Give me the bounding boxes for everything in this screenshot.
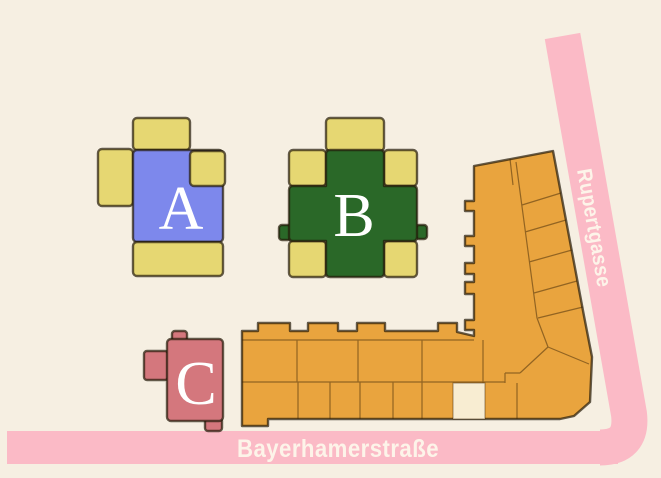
street-bayerhamerstrasse-label: Bayerhamerstraße [237, 435, 439, 463]
building-a-top-wing [133, 118, 190, 150]
building-a[interactable]: A [98, 118, 225, 276]
building-c-left-wing [144, 351, 168, 380]
building-a-label: A [159, 175, 204, 243]
complex-beige-unit [453, 383, 485, 419]
building-b-corner-tr [384, 150, 417, 186]
building-b-corner-br [384, 241, 417, 277]
building-b[interactable]: B [279, 118, 427, 277]
building-b-top-wing [326, 118, 384, 151]
building-b-corner-bl [289, 241, 326, 277]
building-c-label: C [175, 350, 216, 418]
building-a-bottom-wing [133, 242, 223, 276]
site-plan-canvas: A B C Bayerhamerstraße Rupertgasse [0, 0, 661, 478]
building-b-corner-tl [289, 150, 326, 186]
building-c[interactable]: C [144, 331, 223, 431]
building-b-label: B [333, 182, 374, 250]
building-a-left-wing [98, 149, 133, 206]
site-plan: A B C Bayerhamerstraße Rupertgasse [0, 0, 661, 478]
